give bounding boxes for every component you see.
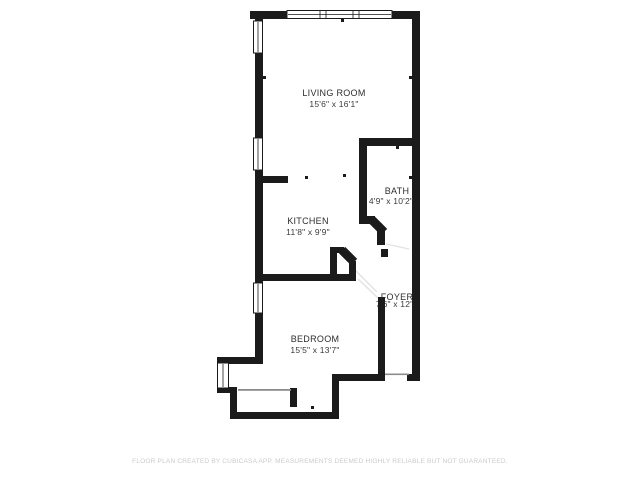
floor-plan-drawing: 7'6" x 12'9" [0,0,640,480]
marker-dot [343,174,346,177]
kitchen-dims: 11'8" x 9'9" [286,227,330,237]
walls [217,11,420,419]
wall-foyer-left [378,297,385,381]
marker-dot [362,374,365,377]
bedroom-label: BEDROOM [291,334,340,344]
foyer-label: FOYER [381,292,414,302]
wall-kitchen-south [255,274,356,281]
wall-bath-door-stub [381,249,388,257]
kitchen-label: KITCHEN [287,216,329,226]
door-swing-line [358,279,379,299]
wall-bedroom-bottom [230,412,339,419]
marker-dot [409,176,412,179]
marker-dot [409,76,412,79]
wall-kitchen-stub [263,176,288,183]
wall-foyer-bottom [332,374,383,381]
wall-bath-diagonal [371,219,384,232]
bath-dims: 4'9" x 10'2" [369,196,413,206]
wall-bath-left [359,138,367,224]
marker-dot [263,76,266,79]
living-room-dims: 15'6" x 16'1" [309,99,358,109]
bath-label: BATH [385,186,410,196]
wall-right [412,11,420,381]
wall-closet-stub [290,388,297,407]
bedroom-dims: 15'5" x 13'7" [290,345,339,355]
wall-bath-jamb [377,231,385,245]
marker-dot [311,406,314,409]
floor-plan-canvas: 7'6" x 12'9" [0,0,640,480]
wall-kitchen-jamb [349,261,356,275]
living-room-label: LIVING ROOM [302,88,365,98]
disclaimer-text: FLOOR PLAN CREATED BY CUBICASA APP. MEAS… [132,458,508,465]
entry-door-threshold [384,374,409,376]
marker-dot [341,19,344,22]
room-labels: LIVING ROOM 15'6" x 16'1" BATH 4'9" x 10… [286,88,413,355]
wall-kitchen-diagonal [342,250,354,262]
wall-bath-top [359,138,420,146]
closet-door-line [238,389,291,391]
marker-dot [396,146,399,149]
door-swing-line [354,269,377,292]
door-swing-line [386,244,409,249]
marker-dot [305,176,308,179]
